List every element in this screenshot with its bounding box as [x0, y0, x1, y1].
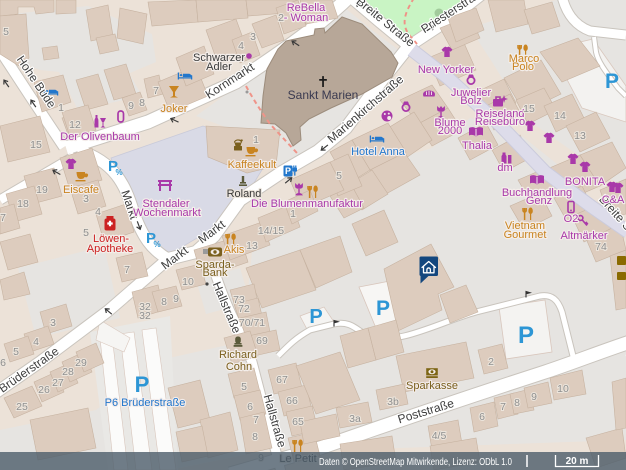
svg-text:Gourmet: Gourmet: [504, 229, 547, 241]
svg-text:4: 4: [95, 206, 101, 218]
svg-text:P: P: [518, 322, 534, 349]
svg-text:72: 72: [238, 303, 250, 315]
svg-text:9: 9: [531, 391, 537, 403]
svg-text:10: 10: [557, 383, 569, 395]
svg-text:1: 1: [58, 102, 64, 114]
svg-text:7: 7: [124, 264, 130, 276]
svg-text:Daten © OpenStreetMap Mitwirke: Daten © OpenStreetMap Mitwirkende, Lizen…: [319, 456, 512, 468]
svg-text:Cohn: Cohn: [226, 361, 252, 373]
svg-text:5: 5: [241, 381, 247, 393]
svg-text:6: 6: [0, 357, 6, 369]
svg-text:67: 67: [276, 374, 288, 386]
svg-text:Reisebüro: Reisebüro: [475, 116, 525, 128]
svg-text:New Yorker: New Yorker: [418, 64, 475, 76]
svg-text:26: 26: [38, 384, 50, 396]
svg-text:74: 74: [595, 241, 607, 253]
svg-text:7: 7: [0, 212, 6, 224]
svg-text:Richard: Richard: [219, 349, 257, 361]
svg-text:1: 1: [253, 134, 259, 146]
svg-text:4/5: 4/5: [432, 430, 447, 442]
svg-text:2000: 2000: [438, 125, 462, 137]
svg-text:2: 2: [278, 12, 284, 24]
svg-text:P: P: [605, 70, 619, 93]
svg-text:5: 5: [3, 26, 9, 38]
svg-text:P: P: [135, 372, 150, 397]
svg-text:27: 27: [52, 377, 64, 389]
svg-text:P6 Brüderstraße: P6 Brüderstraße: [105, 397, 186, 409]
svg-text:9: 9: [173, 293, 179, 305]
svg-text:Adler: Adler: [206, 61, 232, 73]
svg-text:Genz: Genz: [526, 195, 552, 207]
svg-text:13: 13: [246, 240, 258, 252]
svg-text:3a: 3a: [349, 413, 361, 425]
svg-text:5: 5: [83, 227, 89, 239]
svg-text:Apotheke: Apotheke: [87, 243, 133, 255]
svg-text:4: 4: [238, 40, 244, 52]
svg-text:Joker: Joker: [161, 103, 188, 115]
svg-text:9: 9: [128, 100, 134, 112]
svg-text:3: 3: [83, 193, 89, 205]
svg-text:7: 7: [153, 85, 159, 97]
svg-text:P: P: [309, 306, 322, 328]
svg-text:32: 32: [139, 310, 151, 322]
svg-text:dm: dm: [497, 162, 512, 174]
svg-text:15: 15: [523, 103, 535, 115]
svg-text:5: 5: [336, 170, 342, 182]
svg-text:13: 13: [574, 130, 586, 142]
svg-text:8: 8: [252, 431, 258, 443]
svg-text:65: 65: [292, 416, 304, 428]
svg-text:Bolz: Bolz: [460, 95, 481, 107]
svg-text:12: 12: [69, 119, 81, 131]
svg-text:19: 19: [36, 184, 48, 196]
svg-text:6: 6: [247, 401, 253, 413]
svg-text:8: 8: [514, 397, 520, 409]
svg-text:Bank: Bank: [202, 267, 228, 279]
svg-text:Thalia: Thalia: [462, 140, 493, 152]
svg-text:C&A: C&A: [602, 194, 625, 206]
svg-text:P: P: [376, 297, 390, 320]
svg-text:6: 6: [479, 411, 485, 423]
svg-text:70/71: 70/71: [239, 317, 265, 329]
svg-text:66: 66: [286, 395, 298, 407]
svg-text:8: 8: [161, 296, 167, 308]
svg-text:Polo: Polo: [512, 61, 534, 73]
svg-text:14/15: 14/15: [258, 225, 284, 237]
svg-text:3: 3: [50, 317, 56, 329]
svg-text:2: 2: [488, 356, 494, 368]
svg-text:7: 7: [253, 414, 259, 426]
svg-text:- Woman: - Woman: [284, 12, 328, 24]
svg-text:✝: ✝: [317, 74, 330, 91]
svg-text:Der Olivenbaum: Der Olivenbaum: [60, 131, 139, 143]
svg-text:18: 18: [17, 198, 29, 210]
svg-text:Kaffeekult: Kaffeekult: [228, 159, 277, 171]
svg-text:3: 3: [250, 31, 256, 43]
svg-text:10: 10: [182, 276, 194, 288]
svg-text:1: 1: [290, 208, 296, 220]
svg-text:8: 8: [139, 97, 145, 109]
svg-text:29: 29: [75, 357, 87, 369]
svg-text:4: 4: [33, 336, 39, 348]
svg-text:7: 7: [500, 401, 506, 413]
svg-text:15: 15: [30, 139, 42, 151]
svg-text:O2: O2: [564, 213, 579, 225]
svg-text:Die Blumenmanufaktur: Die Blumenmanufaktur: [251, 198, 363, 210]
svg-text:Eiscafe: Eiscafe: [63, 184, 99, 196]
svg-text:Sparkasse: Sparkasse: [406, 380, 458, 392]
svg-text:20 m: 20 m: [566, 456, 589, 467]
svg-text:Hotel Anna: Hotel Anna: [351, 146, 406, 158]
svg-text:Wochenmarkt: Wochenmarkt: [133, 207, 201, 219]
svg-text:5: 5: [13, 346, 19, 358]
svg-text:25: 25: [16, 401, 28, 413]
svg-text:69: 69: [256, 335, 268, 347]
svg-text:28: 28: [62, 366, 74, 378]
svg-text:3b: 3b: [387, 396, 399, 408]
svg-text:Akis: Akis: [224, 244, 245, 256]
svg-text:14: 14: [554, 110, 566, 122]
